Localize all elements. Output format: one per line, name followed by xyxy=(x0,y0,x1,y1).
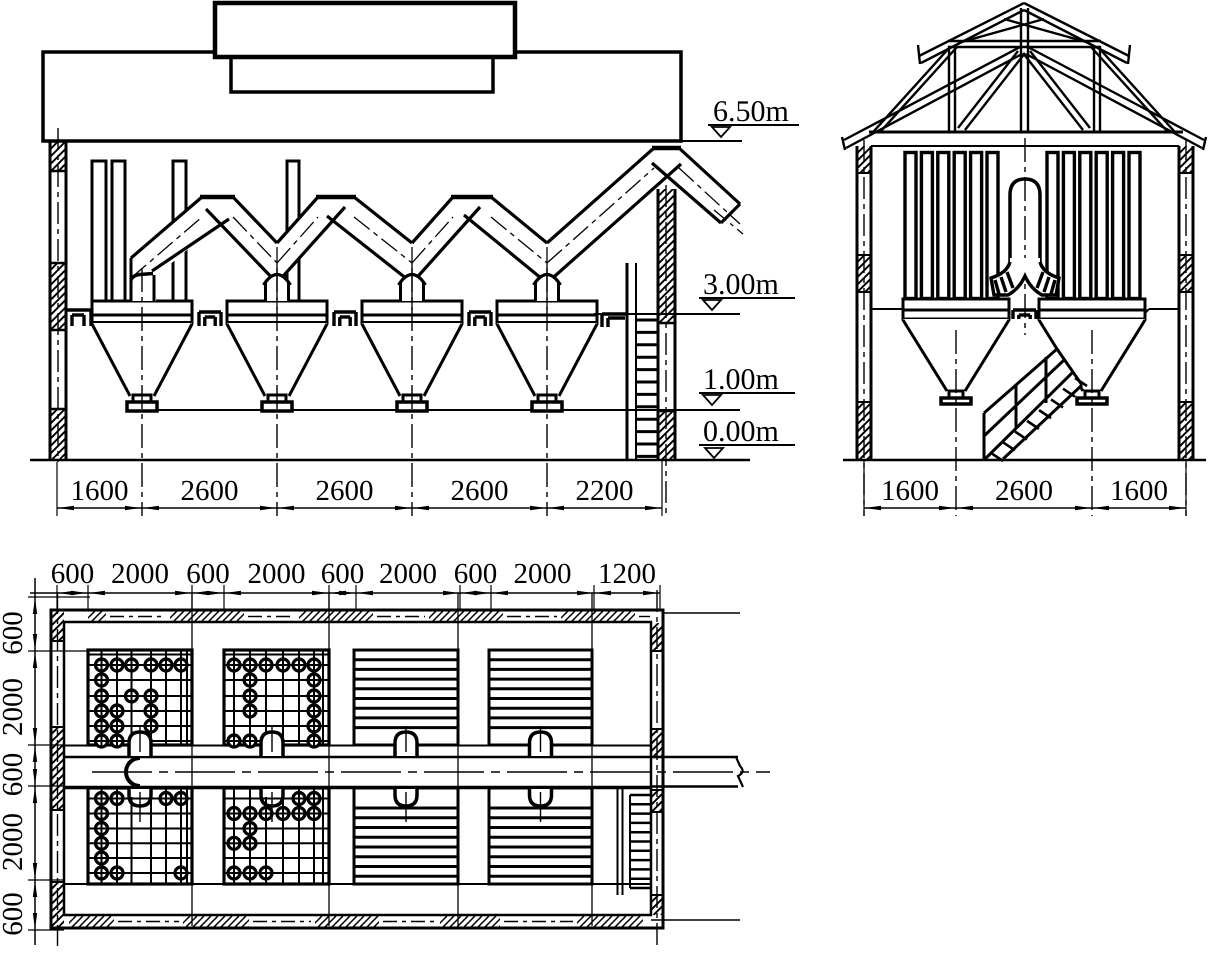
svg-text:1600: 1600 xyxy=(71,475,129,507)
svg-text:2000: 2000 xyxy=(514,558,572,590)
svg-text:600: 600 xyxy=(0,892,29,936)
svg-text:1200: 1200 xyxy=(598,558,656,590)
svg-text:600: 600 xyxy=(454,558,498,590)
svg-text:2000: 2000 xyxy=(248,558,306,590)
svg-text:2200: 2200 xyxy=(576,475,634,507)
svg-text:2000: 2000 xyxy=(379,558,437,590)
svg-text:1600: 1600 xyxy=(1110,475,1168,507)
svg-text:600: 600 xyxy=(186,558,230,590)
svg-text:1.00m: 1.00m xyxy=(703,363,779,396)
svg-text:2000: 2000 xyxy=(0,678,29,736)
svg-text:2000: 2000 xyxy=(111,558,169,590)
svg-text:2600: 2600 xyxy=(451,475,509,507)
svg-text:1600: 1600 xyxy=(881,475,939,507)
svg-text:0.00m: 0.00m xyxy=(703,415,779,448)
svg-text:600: 600 xyxy=(51,558,95,590)
svg-text:600: 600 xyxy=(321,558,365,590)
svg-text:600: 600 xyxy=(0,611,29,655)
svg-text:6.50m: 6.50m xyxy=(713,95,789,128)
svg-text:2600: 2600 xyxy=(316,475,374,507)
svg-text:3.00m: 3.00m xyxy=(703,268,779,301)
svg-text:2600: 2600 xyxy=(995,475,1053,507)
svg-text:2000: 2000 xyxy=(0,813,29,871)
svg-text:2600: 2600 xyxy=(181,475,239,507)
svg-text:600: 600 xyxy=(0,753,29,797)
